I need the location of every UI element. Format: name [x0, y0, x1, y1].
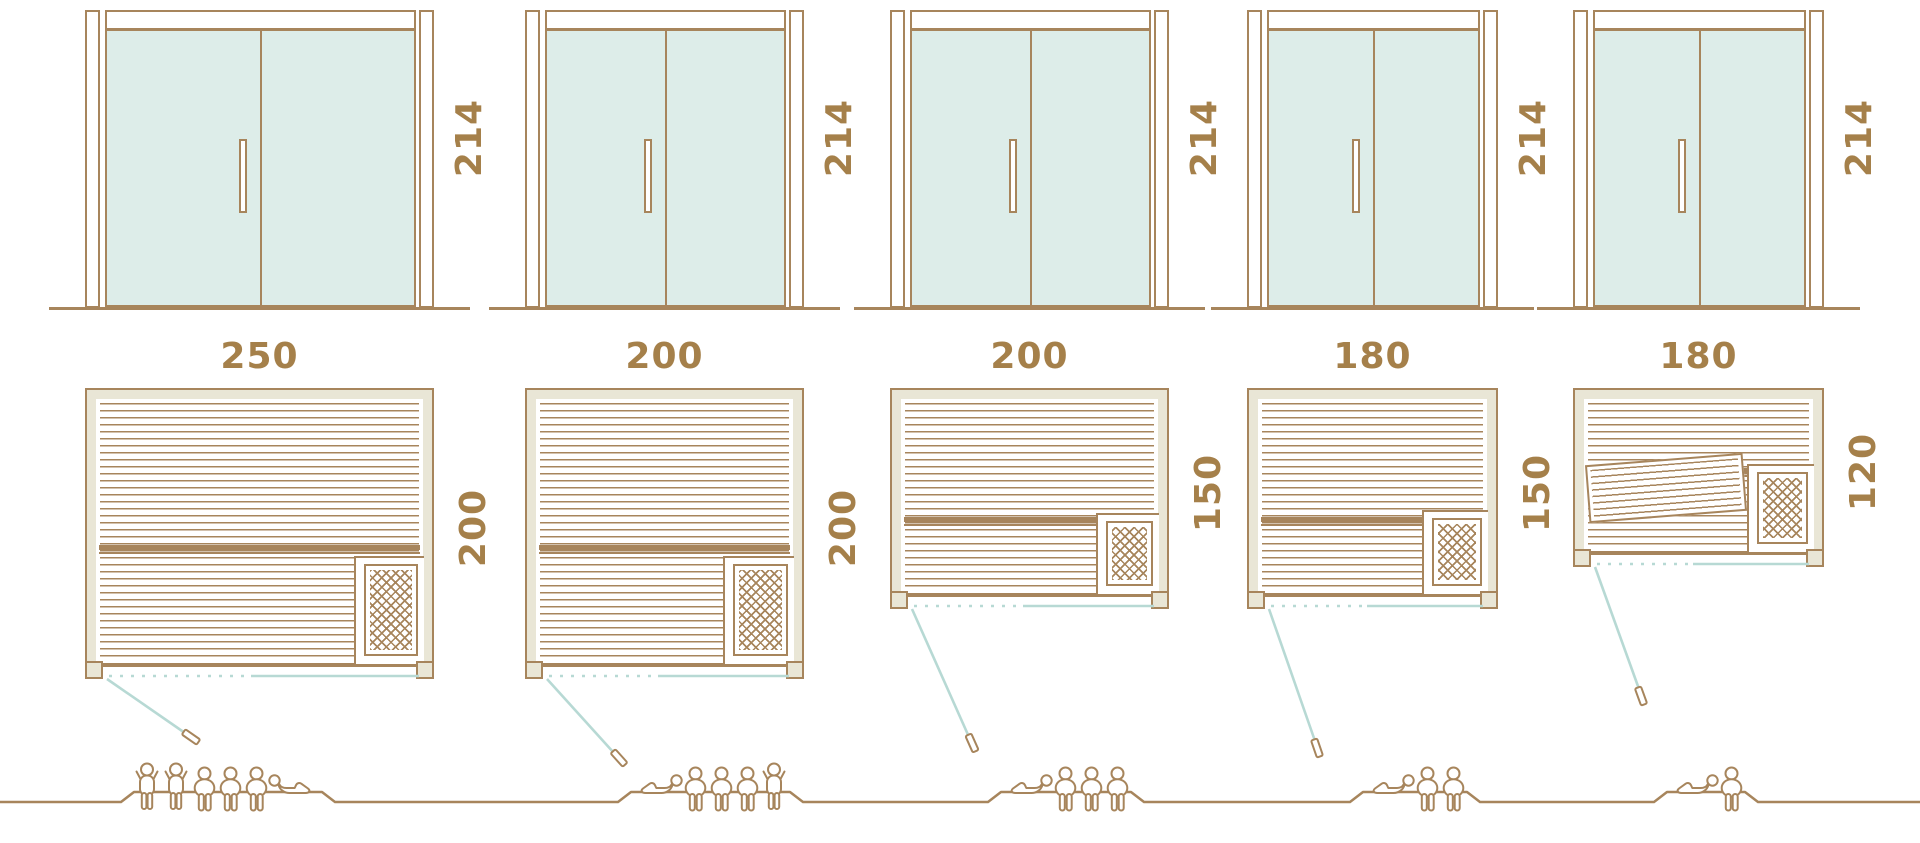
heater [1432, 518, 1482, 586]
door-header [545, 10, 786, 30]
person-sitting-icon [1108, 768, 1128, 811]
heater-clearing [1747, 464, 1814, 552]
floor-plan [525, 388, 804, 667]
width-dimension-label: 180 [1573, 336, 1824, 378]
door-frame-left-post [525, 10, 540, 308]
person-sitting-icon [686, 768, 706, 811]
door-frame-right-post [1154, 10, 1169, 308]
heater-lattice-icon [370, 570, 412, 650]
heater-clearing [1096, 513, 1159, 594]
door-ground-line [1537, 307, 1860, 310]
door-divider-line [1373, 31, 1375, 305]
person-lying-icon [1374, 775, 1414, 793]
floor-plan [1247, 388, 1498, 597]
door-height-dimension-label: 214 [1515, 83, 1553, 193]
door-jamb-right [416, 661, 434, 679]
door-frame-left-post [1247, 10, 1262, 308]
person-lying-icon [1678, 775, 1718, 793]
width-dimension-label: 250 [85, 336, 434, 378]
door-elevation [85, 10, 434, 308]
heater [1106, 521, 1153, 586]
heater [1757, 472, 1808, 544]
depth-dimension-label: 200 [825, 473, 863, 583]
glass-door-panels [910, 29, 1151, 308]
door-handle-icon [1352, 139, 1360, 213]
door-elevation [1247, 10, 1498, 308]
heater-clearing [354, 556, 424, 664]
door-jamb-right [1151, 591, 1169, 609]
width-dimension-label: 180 [1247, 336, 1498, 378]
heater-lattice-icon [1438, 524, 1476, 580]
door-header [910, 10, 1151, 30]
heater-lattice-icon [739, 570, 782, 650]
heater-clearing [1422, 510, 1488, 594]
door-handle-icon [239, 139, 247, 213]
door-divider-line [1699, 31, 1701, 305]
person-lying-icon [1012, 775, 1052, 793]
bench-front-edge [99, 545, 420, 550]
door-header [1267, 10, 1480, 30]
depth-dimension-label: 150 [1190, 438, 1228, 548]
person-lying-icon [269, 775, 309, 793]
door-ground-line [1211, 307, 1534, 310]
door-jamb-left [525, 661, 543, 679]
plan-interior [1258, 399, 1487, 595]
depth-dimension-label: 200 [455, 473, 493, 583]
person-sitting-icon [1444, 768, 1464, 811]
door-jamb-right [786, 661, 804, 679]
door-height-dimension-label: 214 [821, 83, 859, 193]
plan-interior [901, 399, 1158, 595]
door-elevation [1573, 10, 1824, 308]
door-jamb-right [1480, 591, 1498, 609]
floor-plan [890, 388, 1169, 597]
floor-plan [85, 388, 434, 667]
door-swing-diagram [1575, 547, 1920, 727]
person-sitting-icon [1082, 768, 1102, 811]
door-frame-left-post [1573, 10, 1588, 308]
door-elevation [525, 10, 804, 308]
plan-interior [96, 399, 423, 665]
door-frame-right-post [1809, 10, 1824, 308]
heater [364, 564, 418, 656]
door-frame-right-post [419, 10, 434, 308]
door-ground-line [49, 307, 470, 310]
width-dimension-label: 200 [890, 336, 1169, 378]
glass-door-panels [105, 29, 416, 308]
person-sitting-icon [1056, 768, 1076, 811]
glass-door-panels [545, 29, 786, 308]
door-frame-left-post [890, 10, 905, 308]
depth-dimension-label: 150 [1519, 438, 1557, 548]
door-height-dimension-label: 214 [451, 83, 489, 193]
glass-door-panels [1267, 29, 1480, 308]
person-standing-icon [166, 764, 187, 810]
door-divider-line [260, 31, 262, 305]
sauna-size-diagram: 214250 200 [0, 0, 1920, 843]
door-frame-right-post [789, 10, 804, 308]
plan-interior [536, 399, 793, 665]
door-handle-icon [1009, 139, 1017, 213]
door-divider-line [665, 31, 667, 305]
heater [733, 564, 788, 656]
door-handle-icon [1678, 139, 1686, 213]
bench-front-edge [539, 545, 790, 550]
plan-interior [1584, 399, 1813, 553]
person-sitting-icon [738, 768, 758, 811]
person-lying-icon [642, 775, 682, 793]
door-frame-right-post [1483, 10, 1498, 308]
floor-plan [1573, 388, 1824, 555]
person-sitting-icon [195, 768, 215, 811]
door-ground-line [489, 307, 840, 310]
door-jamb-left [1573, 549, 1591, 567]
door-jamb-left [85, 661, 103, 679]
width-dimension-label: 200 [525, 336, 804, 378]
door-header [105, 10, 416, 30]
person-sitting-icon [712, 768, 732, 811]
door-jamb-right [1806, 549, 1824, 567]
door-jamb-left [1247, 591, 1265, 609]
person-standing-icon [764, 764, 785, 810]
door-header [1593, 10, 1806, 30]
open-door-line [107, 679, 185, 733]
capacity-strip [0, 740, 1920, 843]
door-height-dimension-label: 214 [1841, 83, 1879, 193]
door-height-dimension-label: 214 [1186, 83, 1224, 193]
door-handle-icon [644, 139, 652, 213]
glass-door-panels [1593, 29, 1806, 308]
door-ground-line [854, 307, 1205, 310]
open-door-line [1269, 609, 1315, 741]
plan-door-handle-icon [1635, 686, 1647, 705]
open-door-line [1595, 567, 1639, 689]
person-standing-icon [137, 764, 158, 810]
heater-lattice-icon [1763, 478, 1802, 538]
diagonal-lounge-bench [1585, 453, 1747, 523]
door-elevation [890, 10, 1169, 308]
person-sitting-icon [221, 768, 241, 811]
door-jamb-left [890, 591, 908, 609]
person-sitting-icon [1722, 768, 1742, 811]
person-sitting-icon [247, 768, 267, 811]
depth-dimension-label: 120 [1845, 417, 1883, 527]
open-door-line [912, 609, 969, 737]
heater-lattice-icon [1112, 527, 1147, 580]
door-frame-left-post [85, 10, 100, 308]
person-sitting-icon [1418, 768, 1438, 811]
heater-clearing [723, 556, 794, 664]
door-divider-line [1030, 31, 1032, 305]
